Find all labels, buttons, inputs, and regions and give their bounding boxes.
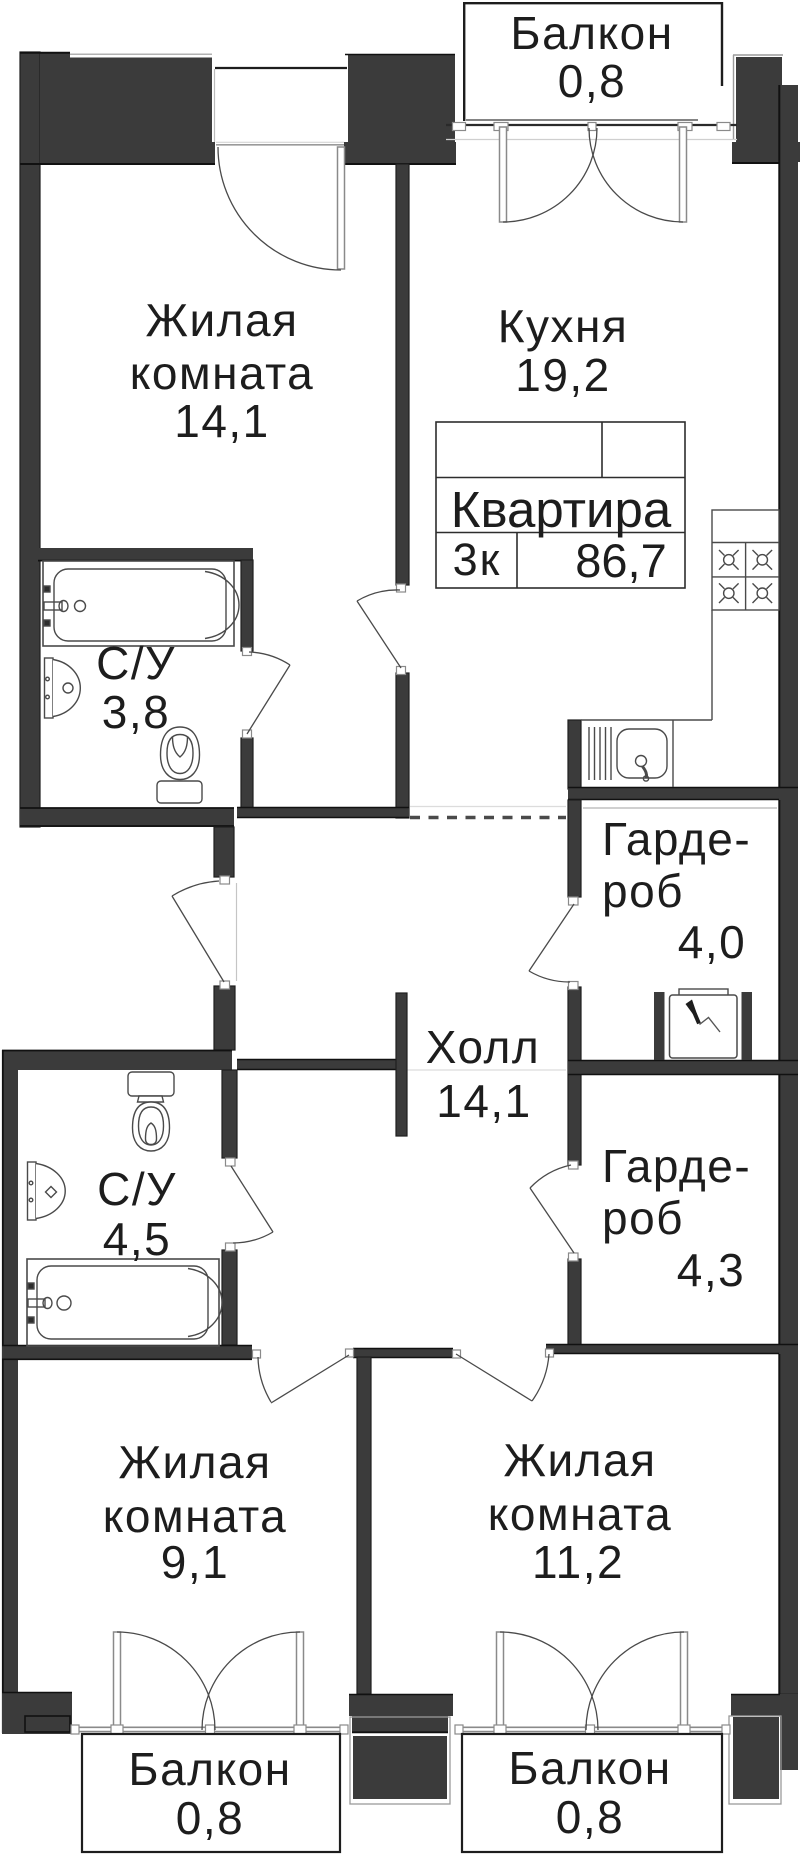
svg-text:С/У: С/У bbox=[97, 1163, 177, 1215]
svg-text:роб: роб bbox=[602, 1192, 684, 1244]
svg-text:Балкон: Балкон bbox=[510, 7, 673, 59]
svg-text:Холл: Холл bbox=[426, 1021, 540, 1073]
svg-text:комната: комната bbox=[488, 1488, 672, 1540]
svg-text:Жилая: Жилая bbox=[118, 1436, 271, 1488]
svg-text:комната: комната bbox=[130, 347, 314, 399]
svg-text:0,8: 0,8 bbox=[558, 55, 626, 107]
svg-text:Кухня: Кухня bbox=[498, 300, 629, 352]
svg-text:комната: комната bbox=[103, 1490, 287, 1542]
svg-text:19,2: 19,2 bbox=[515, 349, 611, 401]
svg-text:3к: 3к bbox=[453, 534, 502, 585]
svg-text:4,3: 4,3 bbox=[677, 1244, 745, 1296]
svg-text:14,1: 14,1 bbox=[174, 395, 270, 447]
svg-text:С/У: С/У bbox=[96, 637, 176, 689]
svg-text:0,8: 0,8 bbox=[176, 1792, 244, 1844]
svg-text:9,1: 9,1 bbox=[161, 1536, 229, 1588]
svg-text:Квартира: Квартира bbox=[451, 481, 672, 538]
svg-text:4,5: 4,5 bbox=[103, 1213, 171, 1265]
svg-text:3,8: 3,8 bbox=[102, 686, 170, 738]
svg-text:0,8: 0,8 bbox=[556, 1791, 624, 1843]
svg-text:Жилая: Жилая bbox=[503, 1434, 656, 1486]
svg-text:роб: роб bbox=[602, 865, 684, 917]
svg-text:Жилая: Жилая bbox=[145, 294, 298, 346]
svg-text:11,2: 11,2 bbox=[532, 1536, 624, 1588]
svg-text:Гарде-: Гарде- bbox=[602, 1140, 751, 1192]
svg-text:4,0: 4,0 bbox=[678, 916, 746, 968]
svg-text:Балкон: Балкон bbox=[508, 1742, 671, 1794]
svg-text:14,1: 14,1 bbox=[436, 1075, 532, 1127]
svg-text:Гарде-: Гарде- bbox=[602, 813, 751, 865]
svg-text:Балкон: Балкон bbox=[128, 1743, 291, 1795]
svg-text:86,7: 86,7 bbox=[575, 534, 666, 587]
